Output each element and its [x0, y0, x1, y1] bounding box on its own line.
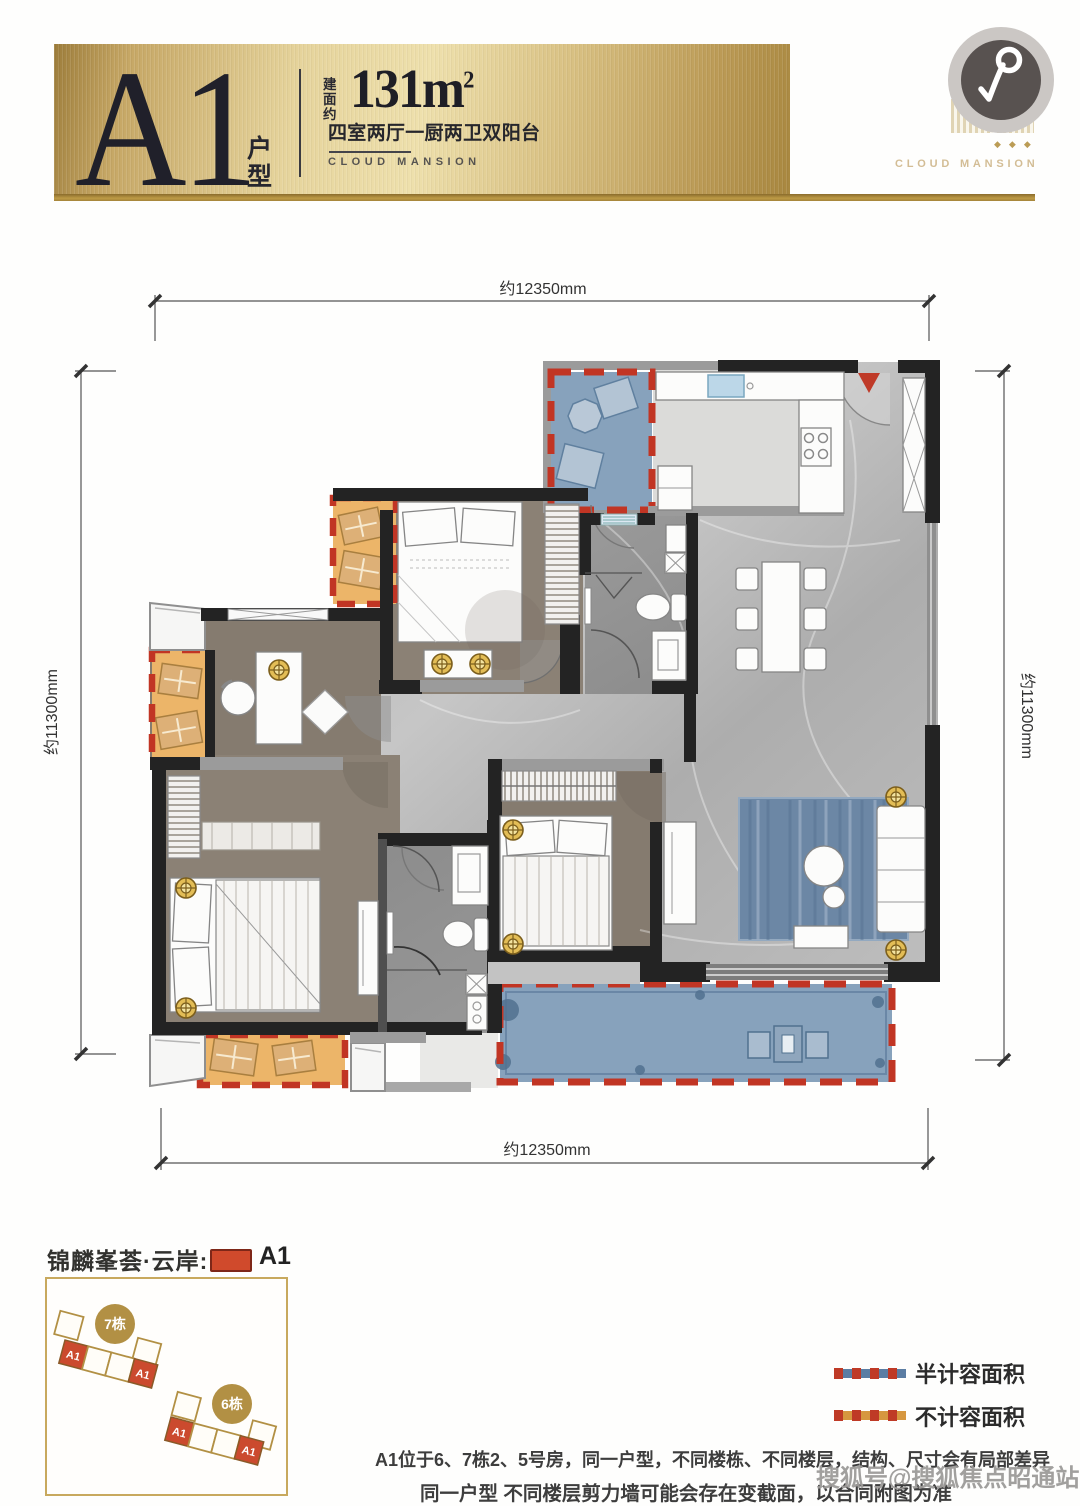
svg-text:约12350mm: 约12350mm	[503, 1141, 590, 1159]
svg-text:6栋: 6栋	[221, 1396, 243, 1412]
svg-text:约12350mm: 约12350mm	[499, 280, 586, 298]
svg-text:约11300mm: 约11300mm	[43, 669, 61, 755]
svg-text:7栋: 7栋	[104, 1316, 126, 1332]
svg-text:约11300mm: 约11300mm	[1018, 673, 1036, 759]
